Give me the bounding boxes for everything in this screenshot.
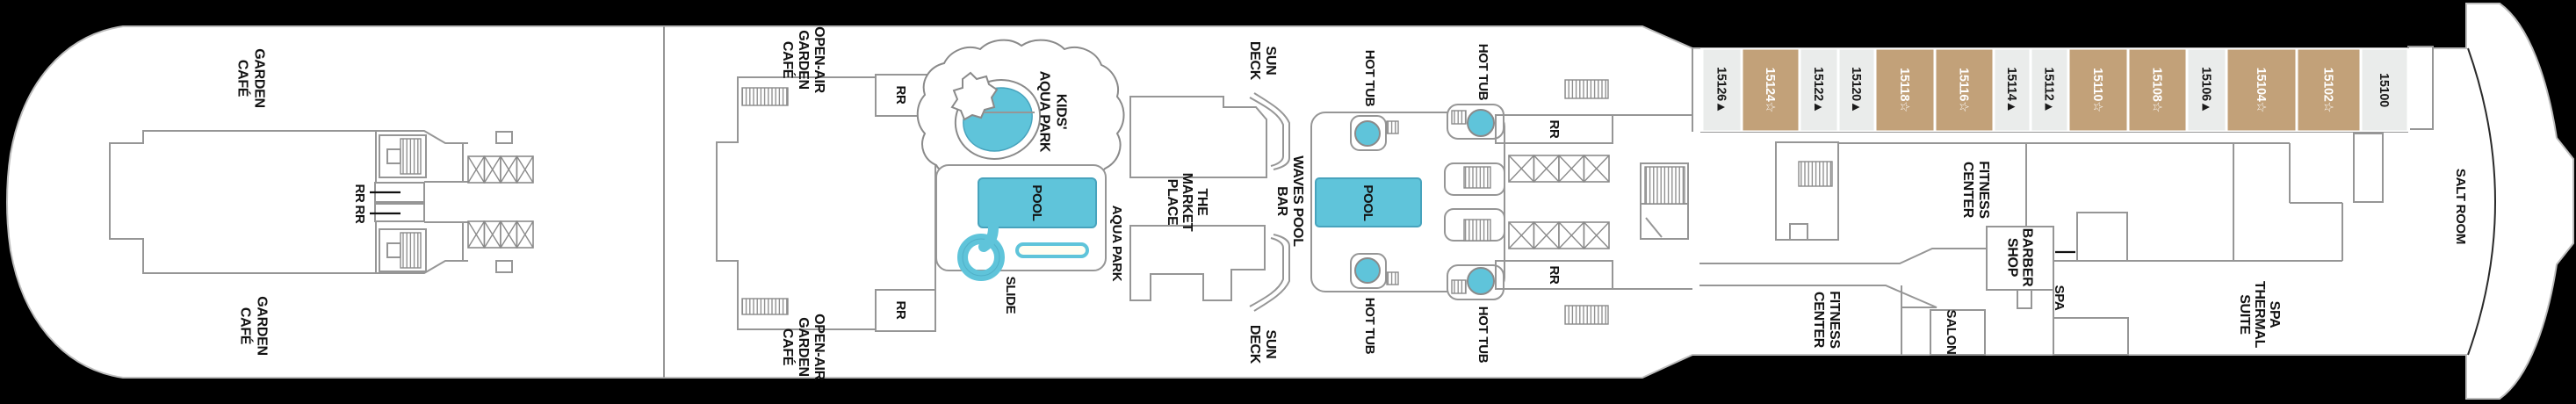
label-fitness-center-upper: FITNESSCENTER [1960, 161, 1991, 219]
cabin-number-label: 15114▲ [2004, 67, 2018, 112]
stairs-icon [400, 139, 421, 174]
cabin-number-label: 15126▲ [1714, 67, 1728, 113]
label-salt-room: SALT ROOM [2453, 169, 2468, 244]
hot-tub-icon [1468, 110, 1494, 136]
stairs-icon [742, 88, 788, 105]
main-pool-area [1311, 105, 1504, 299]
label-hot-tub-tc: HOT TUB [1362, 50, 1377, 107]
label-spa: SPA [2052, 285, 2067, 311]
elevator-bank-icon [1509, 222, 1609, 249]
kids-aqua-park [918, 40, 1124, 177]
elevator-bank-icon [468, 221, 533, 248]
cabin-number-label: 15104☆ [2254, 68, 2268, 113]
label-hot-tub-bc: HOT TUB [1362, 298, 1377, 355]
label-rr-fwd-a: RR [352, 184, 367, 203]
cabin-number-label: 15118☆ [1897, 68, 1911, 112]
stairs-icon [1452, 111, 1466, 124]
elevator-bank-icon [1509, 155, 1609, 182]
cabin-number-label: 15112▲ [2042, 67, 2056, 112]
hot-tub-icon [1355, 258, 1380, 283]
cabin-number-label: 15120▲ [1849, 67, 1863, 113]
label-rr-mid-top: RR [1547, 119, 1562, 139]
stairs-icon [400, 233, 421, 268]
stairs-icon [1565, 80, 1608, 98]
label-aqua-park: AQUA PARK [1109, 206, 1124, 282]
stairs-icon [1452, 280, 1466, 293]
cabin-number-label: 15124☆ [1763, 68, 1777, 113]
label-sun-deck-top: SUNDECK [1247, 41, 1278, 81]
cabin-number-label: 15116☆ [1957, 68, 1971, 112]
label-rr-mid-bottom: RR [1547, 265, 1562, 285]
stairs-icon [1464, 167, 1490, 188]
label-pool-aqua: POOL [1029, 184, 1044, 220]
cabin-number-label: 15110☆ [2090, 68, 2104, 112]
aqua-park-area [936, 165, 1106, 276]
stairs-icon [1387, 121, 1398, 133]
cabin-number-label: 15106▲ [2199, 67, 2213, 113]
stairs-icon [1565, 306, 1608, 324]
label-slide: SLIDE [1003, 277, 1018, 314]
label-fitness-center-lower: FITNESSCENTER [1811, 291, 1842, 349]
elevator-bank-icon [468, 156, 533, 183]
stairs-icon [1799, 162, 1832, 186]
label-pool-main: POOL [1360, 184, 1375, 220]
hot-tub-icon [1355, 121, 1380, 146]
cabin-number-label: 15100 [2377, 73, 2391, 107]
cabin-strip: 15126▲15124☆15122▲15120▲15118☆15116☆1511… [1700, 48, 2410, 132]
cabin-number-label: 15108☆ [2150, 68, 2164, 113]
cabin-number-label: 15102☆ [2321, 68, 2335, 113]
stairs-icon [1387, 272, 1398, 285]
label-rr-openair-top: RR [893, 85, 908, 105]
stairs-icon [1645, 167, 1685, 204]
hot-tub-icon [1468, 268, 1494, 294]
label-hot-tub-tr: HOT TUB [1476, 44, 1490, 101]
stairs-icon [1464, 220, 1490, 241]
label-salon: SALON [1944, 309, 1959, 354]
cabin-number-label: 15122▲ [1811, 67, 1825, 113]
racer-slide-lane [1017, 244, 1087, 256]
deck-plan: 15126▲15124☆15122▲15120▲15118☆15116☆1511… [0, 0, 2576, 404]
label-hot-tub-br: HOT TUB [1476, 307, 1490, 364]
stairs-icon [742, 299, 788, 314]
label-sun-deck-bottom: SUNDECK [1247, 325, 1278, 364]
label-rr-fwd-b: RR [352, 205, 367, 224]
label-rr-openair-bottom: RR [893, 300, 908, 320]
